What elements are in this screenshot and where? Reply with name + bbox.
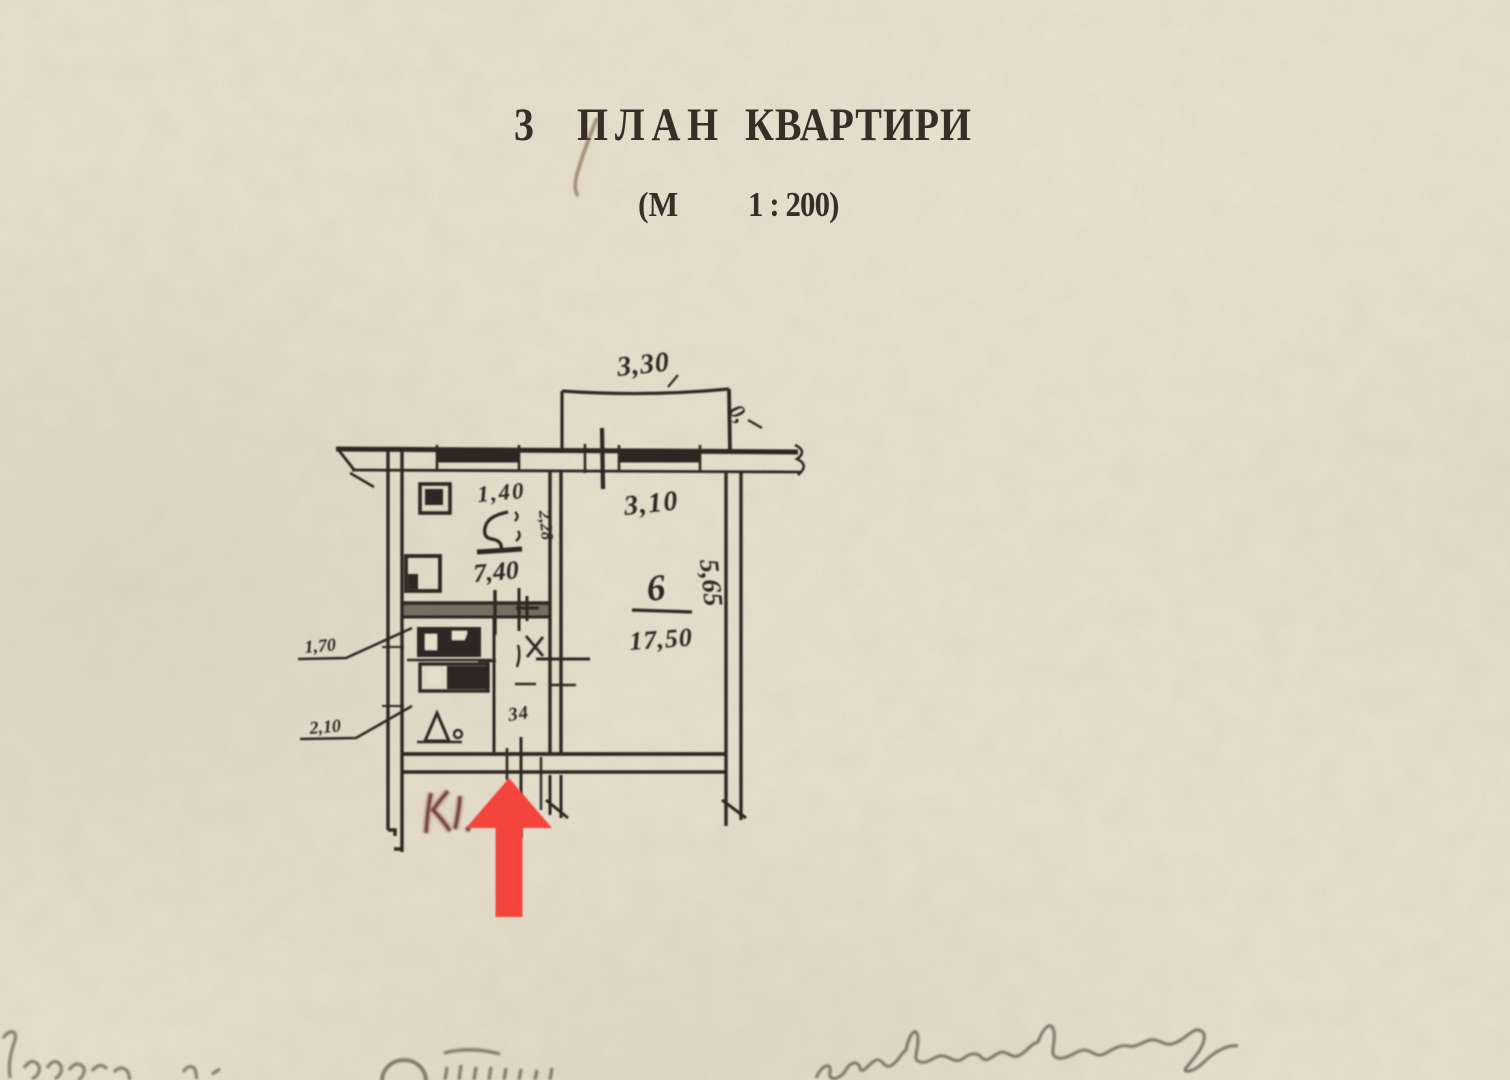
svg-text:2,28: 2,28 (535, 508, 557, 541)
svg-text:1,70: 1,70 (304, 634, 337, 657)
svg-text:3,10: 3,10 (621, 485, 680, 522)
svg-text:17,50: 17,50 (628, 623, 693, 656)
svg-text:2,10: 2,10 (308, 715, 342, 738)
svg-text:34: 34 (506, 702, 531, 726)
svg-text:6: 6 (645, 567, 668, 610)
svg-text:7,40: 7,40 (472, 555, 520, 588)
svg-text:1,40: 1,40 (476, 478, 526, 507)
svg-text:3,30: 3,30 (614, 347, 671, 383)
svg-text:5,65: 5,65 (694, 557, 729, 607)
